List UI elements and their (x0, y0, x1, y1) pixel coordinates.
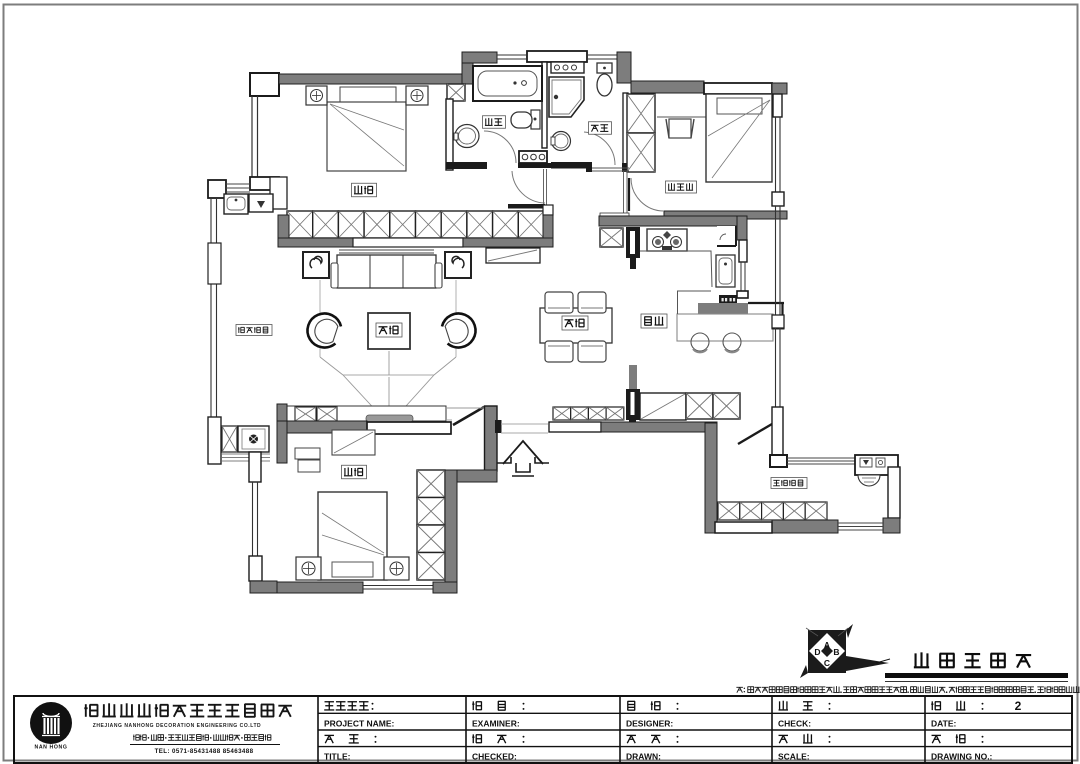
svg-text:PROJECT NAME:: PROJECT NAME: (324, 719, 395, 729)
svg-text:C: C (824, 658, 830, 668)
svg-text:NAN HONG: NAN HONG (34, 745, 67, 751)
svg-text:DRAWN:: DRAWN: (626, 752, 661, 762)
svg-text:CHECK:: CHECK: (778, 719, 811, 729)
svg-text:DRAWING NO.:: DRAWING NO.: (931, 752, 993, 762)
svg-text:SCALE:: SCALE: (778, 752, 810, 762)
svg-text:DESIGNER:: DESIGNER: (626, 719, 673, 729)
svg-text:D: D (814, 647, 820, 657)
svg-text:ZHEJIANG NANHONG DECORATION EN: ZHEJIANG NANHONG DECORATION ENGINEERING … (93, 723, 261, 729)
svg-text:2: 2 (1015, 699, 1022, 713)
svg-text:CHECKED:: CHECKED: (472, 752, 517, 762)
svg-text:TITLE:: TITLE: (324, 752, 351, 762)
svg-text:B: B (833, 647, 839, 657)
svg-text:DATE:: DATE: (931, 719, 957, 729)
svg-text:EXAMINER:: EXAMINER: (472, 719, 520, 729)
svg-text:TEL: 0571-85431488 85463488: TEL: 0571-85431488 85463488 (155, 748, 254, 755)
svg-text:A: A (824, 640, 830, 650)
